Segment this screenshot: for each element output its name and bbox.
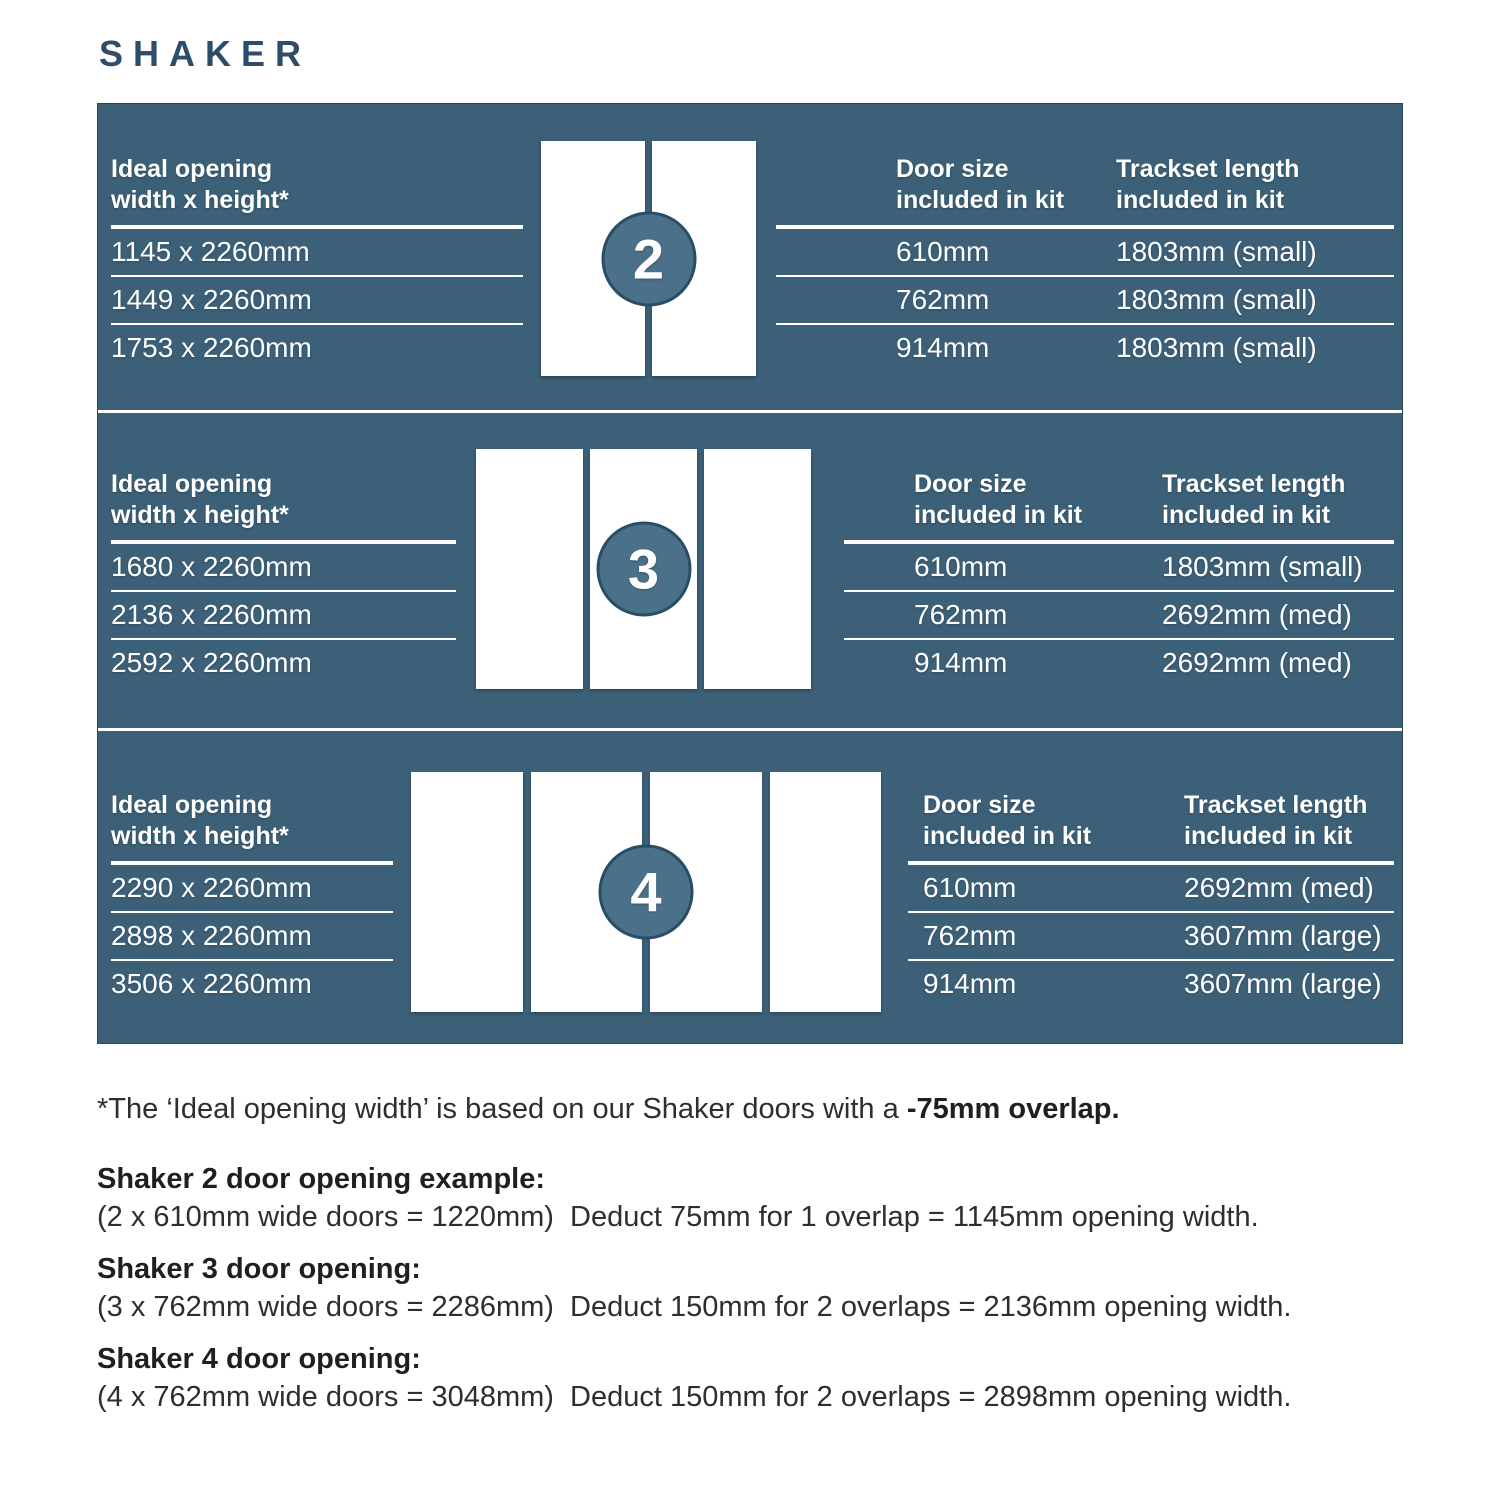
trackset-header-line2: included in kit (1162, 500, 1345, 531)
door-size-header-line1: Door size (896, 154, 1064, 185)
trackset-value: 1803mm (small) (1162, 551, 1363, 583)
door-count-badge: 4 (599, 845, 694, 940)
opening-table-3door: Ideal opening width x height* 1680 x 226… (111, 469, 456, 686)
door-count-badge: 2 (601, 211, 696, 306)
trackset-value: 3607mm (large) (1184, 920, 1382, 952)
kit-row: 914mm 2692mm (med) (844, 640, 1394, 686)
door-panel (704, 449, 811, 689)
kit-row: 762mm 1803mm (small) (776, 277, 1394, 323)
door-size-value: 610mm (896, 236, 989, 268)
door-count-badge: 3 (596, 522, 691, 617)
door-diagram-2: 2 (541, 141, 756, 376)
kit-row: 914mm 1803mm (small) (776, 325, 1394, 371)
opening-row: 2898 x 2260mm (111, 913, 393, 959)
opening-row: 2592 x 2260mm (111, 640, 456, 686)
example-title: Shaker 4 door opening: (97, 1340, 1447, 1378)
opening-header-line1: Ideal opening (111, 154, 523, 185)
opening-row: 1680 x 2260mm (111, 544, 456, 590)
opening-value: 1145 x 2260mm (111, 236, 310, 268)
overlap-footnote: *The ‘Ideal opening width’ is based on o… (97, 1090, 1447, 1128)
opening-row: 2290 x 2260mm (111, 865, 393, 911)
page-title: SHAKER (99, 33, 311, 75)
example-body: (3 x 762mm wide doors = 2286mm) Deduct 1… (97, 1288, 1447, 1326)
spec-sheet: SHAKER Ideal opening width x height* 114… (0, 0, 1500, 1500)
trackset-value: 2692mm (med) (1184, 872, 1374, 904)
example-body: (4 x 762mm wide doors = 3048mm) Deduct 1… (97, 1378, 1447, 1416)
door-panel (476, 449, 583, 689)
trackset-value: 1803mm (small) (1116, 284, 1317, 316)
trackset-header: Trackset length included in kit (1116, 154, 1299, 216)
trackset-value: 1803mm (small) (1116, 236, 1317, 268)
kit-table-3door: Door size included in kit Trackset lengt… (844, 469, 1394, 686)
door-size-value: 610mm (923, 872, 1016, 904)
opening-row: 1145 x 2260mm (111, 229, 523, 275)
opening-header-line1: Ideal opening (111, 790, 393, 821)
opening-header-line2: width x height* (111, 821, 393, 852)
opening-value: 2290 x 2260mm (111, 872, 312, 904)
door-panel (411, 772, 523, 1012)
trackset-header: Trackset length included in kit (1184, 790, 1367, 852)
door-size-value: 914mm (914, 647, 1007, 679)
door-size-value: 762mm (914, 599, 1007, 631)
kit-row: 762mm 2692mm (med) (844, 592, 1394, 638)
opening-value: 1753 x 2260mm (111, 332, 312, 364)
door-size-header-line1: Door size (914, 469, 1082, 500)
opening-value: 3506 x 2260mm (111, 968, 312, 1000)
door-size-value: 610mm (914, 551, 1007, 583)
opening-header: Ideal opening width x height* (111, 469, 456, 531)
opening-row: 1449 x 2260mm (111, 277, 523, 323)
trackset-header: Trackset length included in kit (1162, 469, 1345, 531)
opening-row: 1753 x 2260mm (111, 325, 523, 371)
door-panel (770, 772, 882, 1012)
door-diagram-3: 3 (476, 449, 811, 689)
opening-value: 1449 x 2260mm (111, 284, 312, 316)
kit-table-2door: Door size included in kit Trackset lengt… (776, 154, 1394, 371)
footnote-text: *The ‘Ideal opening width’ is based on o… (97, 1093, 907, 1125)
trackset-header-line1: Trackset length (1162, 469, 1345, 500)
opening-value: 2898 x 2260mm (111, 920, 312, 952)
kit-table-4door: Door size included in kit Trackset lengt… (908, 790, 1394, 1007)
door-size-value: 762mm (896, 284, 989, 316)
opening-value: 2592 x 2260mm (111, 647, 312, 679)
section-2-door: Ideal opening width x height* 1145 x 226… (98, 104, 1402, 410)
door-diagram-4: 4 (411, 772, 881, 1012)
door-size-header: Door size included in kit (923, 790, 1091, 852)
door-size-header: Door size included in kit (914, 469, 1082, 531)
example-title: Shaker 2 door opening example: (97, 1160, 1447, 1198)
opening-value: 2136 x 2260mm (111, 599, 312, 631)
opening-header-line2: width x height* (111, 500, 456, 531)
trackset-value: 3607mm (large) (1184, 968, 1382, 1000)
explanatory-text: *The ‘Ideal opening width’ is based on o… (97, 1090, 1447, 1416)
kit-row: 610mm 1803mm (small) (844, 544, 1394, 590)
door-size-header: Door size included in kit (896, 154, 1064, 216)
opening-header-line2: width x height* (111, 185, 523, 216)
opening-header: Ideal opening width x height* (111, 154, 523, 216)
trackset-value: 1803mm (small) (1116, 332, 1317, 364)
trackset-value: 2692mm (med) (1162, 647, 1352, 679)
trackset-header-line1: Trackset length (1184, 790, 1367, 821)
example-4-door: Shaker 4 door opening: (4 x 762mm wide d… (97, 1340, 1447, 1416)
door-size-header-line1: Door size (923, 790, 1091, 821)
example-3-door: Shaker 3 door opening: (3 x 762mm wide d… (97, 1250, 1447, 1326)
door-size-value: 914mm (923, 968, 1016, 1000)
opening-header: Ideal opening width x height* (111, 790, 393, 852)
opening-row: 2136 x 2260mm (111, 592, 456, 638)
opening-header-line1: Ideal opening (111, 469, 456, 500)
footnote-bold: -75mm overlap. (907, 1093, 1120, 1125)
opening-value: 1680 x 2260mm (111, 551, 312, 583)
section-3-door: Ideal opening width x height* 1680 x 226… (98, 413, 1402, 728)
opening-table-2door: Ideal opening width x height* 1145 x 226… (111, 154, 523, 371)
kit-row: 610mm 1803mm (small) (776, 229, 1394, 275)
trackset-value: 2692mm (med) (1162, 599, 1352, 631)
example-body: (2 x 610mm wide doors = 1220mm) Deduct 7… (97, 1198, 1447, 1236)
trackset-header-line2: included in kit (1184, 821, 1367, 852)
door-size-header-line2: included in kit (914, 500, 1082, 531)
door-size-header-line2: included in kit (923, 821, 1091, 852)
trackset-header-line1: Trackset length (1116, 154, 1299, 185)
kit-row: 610mm 2692mm (med) (908, 865, 1394, 911)
kit-header: Door size included in kit Trackset lengt… (844, 469, 1394, 531)
opening-table-4door: Ideal opening width x height* 2290 x 226… (111, 790, 393, 1007)
door-size-header-line2: included in kit (896, 185, 1064, 216)
kit-header: Door size included in kit Trackset lengt… (908, 790, 1394, 852)
door-size-value: 914mm (896, 332, 989, 364)
example-title: Shaker 3 door opening: (97, 1250, 1447, 1288)
section-4-door: Ideal opening width x height* 2290 x 226… (98, 731, 1402, 1039)
sizing-panel: Ideal opening width x height* 1145 x 226… (97, 103, 1403, 1044)
trackset-header-line2: included in kit (1116, 185, 1299, 216)
door-size-value: 762mm (923, 920, 1016, 952)
kit-row: 762mm 3607mm (large) (908, 913, 1394, 959)
kit-header: Door size included in kit Trackset lengt… (776, 154, 1394, 216)
opening-row: 3506 x 2260mm (111, 961, 393, 1007)
kit-row: 914mm 3607mm (large) (908, 961, 1394, 1007)
example-2-door: Shaker 2 door opening example: (2 x 610m… (97, 1160, 1447, 1236)
